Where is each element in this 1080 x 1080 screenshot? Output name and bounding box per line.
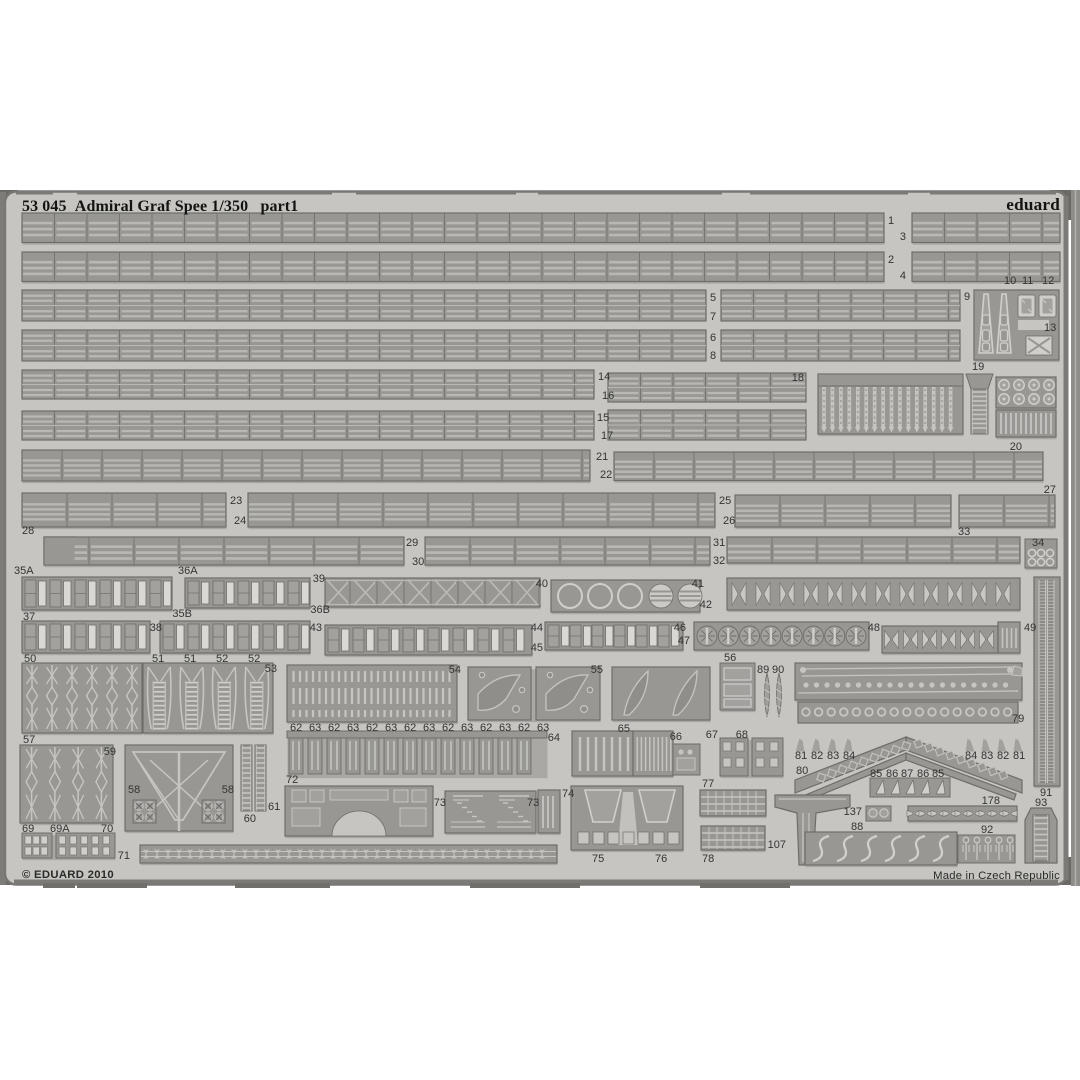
svg-text:83: 83 <box>827 750 839 762</box>
svg-text:92: 92 <box>981 824 993 836</box>
svg-text:59: 59 <box>104 746 116 758</box>
svg-text:79: 79 <box>1012 713 1024 725</box>
svg-text:54: 54 <box>449 664 461 676</box>
svg-text:63: 63 <box>385 722 397 734</box>
svg-text:75: 75 <box>592 853 604 865</box>
svg-text:76: 76 <box>655 853 667 865</box>
svg-text:29: 29 <box>406 537 418 549</box>
svg-text:50: 50 <box>24 653 36 665</box>
svg-text:84: 84 <box>843 750 855 762</box>
svg-text:56: 56 <box>724 652 736 664</box>
svg-text:26: 26 <box>723 515 735 527</box>
svg-text:41: 41 <box>692 578 704 590</box>
svg-text:82: 82 <box>997 750 1009 762</box>
svg-text:33: 33 <box>958 526 970 538</box>
svg-text:88: 88 <box>851 821 863 833</box>
svg-text:30: 30 <box>412 556 424 568</box>
svg-text:63: 63 <box>309 722 321 734</box>
svg-text:3: 3 <box>900 231 906 243</box>
svg-text:27: 27 <box>1044 484 1056 496</box>
svg-text:61: 61 <box>268 801 280 813</box>
svg-text:14: 14 <box>598 371 610 383</box>
svg-text:83: 83 <box>981 750 993 762</box>
svg-text:87: 87 <box>901 768 913 780</box>
svg-text:62: 62 <box>290 722 302 734</box>
svg-text:63: 63 <box>423 722 435 734</box>
svg-text:40: 40 <box>536 578 548 590</box>
svg-text:10: 10 <box>1004 275 1016 287</box>
svg-text:57: 57 <box>23 734 35 746</box>
svg-text:71: 71 <box>118 850 130 862</box>
svg-text:91: 91 <box>1040 787 1052 799</box>
svg-text:36B: 36B <box>310 604 330 616</box>
svg-text:47: 47 <box>678 635 690 647</box>
svg-text:72: 72 <box>286 774 298 786</box>
svg-text:63: 63 <box>461 722 473 734</box>
svg-text:© EDUARD 2010: © EDUARD 2010 <box>22 869 114 881</box>
svg-text:52: 52 <box>248 653 260 665</box>
svg-text:44: 44 <box>531 622 543 634</box>
svg-text:86: 86 <box>886 768 898 780</box>
svg-text:36A: 36A <box>178 565 198 577</box>
svg-text:eduard: eduard <box>1006 195 1060 214</box>
svg-text:24: 24 <box>234 515 246 527</box>
svg-text:89: 89 <box>757 664 769 676</box>
svg-text:62: 62 <box>404 722 416 734</box>
svg-text:48: 48 <box>868 622 880 634</box>
svg-text:85: 85 <box>932 768 944 780</box>
svg-text:32: 32 <box>713 555 725 567</box>
svg-text:69: 69 <box>22 823 34 835</box>
svg-text:86: 86 <box>917 768 929 780</box>
svg-text:22: 22 <box>600 469 612 481</box>
svg-text:42: 42 <box>700 599 712 611</box>
svg-text:49: 49 <box>1024 622 1036 634</box>
svg-text:62: 62 <box>480 722 492 734</box>
svg-text:39: 39 <box>313 573 325 585</box>
svg-text:4: 4 <box>900 270 906 282</box>
svg-text:28: 28 <box>22 525 34 537</box>
svg-text:68: 68 <box>736 729 748 741</box>
svg-text:62: 62 <box>518 722 530 734</box>
svg-text:37: 37 <box>23 611 35 623</box>
svg-text:Made in Czech Republic: Made in Czech Republic <box>933 870 1060 882</box>
svg-text:51: 51 <box>184 653 196 665</box>
svg-text:63: 63 <box>537 722 549 734</box>
svg-text:74: 74 <box>562 788 574 800</box>
svg-text:78: 78 <box>702 853 714 865</box>
svg-text:23: 23 <box>230 495 242 507</box>
svg-text:62: 62 <box>442 722 454 734</box>
svg-text:84: 84 <box>965 750 977 762</box>
svg-text:178: 178 <box>982 795 1000 807</box>
svg-text:63: 63 <box>499 722 511 734</box>
svg-text:31: 31 <box>713 537 725 549</box>
svg-text:43: 43 <box>310 622 322 634</box>
svg-text:11: 11 <box>1022 275 1033 287</box>
svg-text:63: 63 <box>347 722 359 734</box>
svg-text:82: 82 <box>811 750 823 762</box>
svg-text:70: 70 <box>101 823 113 835</box>
svg-text:77: 77 <box>702 778 714 790</box>
svg-text:58: 58 <box>128 784 140 796</box>
svg-text:8: 8 <box>710 350 716 362</box>
svg-text:62: 62 <box>366 722 378 734</box>
svg-text:45: 45 <box>531 642 543 654</box>
svg-text:62: 62 <box>328 722 340 734</box>
svg-text:25: 25 <box>719 495 731 507</box>
svg-text:67: 67 <box>706 729 718 741</box>
svg-text:9: 9 <box>964 291 970 303</box>
svg-text:15: 15 <box>597 412 609 424</box>
svg-text:81: 81 <box>795 750 807 762</box>
svg-text:85: 85 <box>870 768 882 780</box>
svg-text:17: 17 <box>601 430 613 442</box>
svg-text:53 045 Admiral Graf Spee 1/35: 53 045 Admiral Graf Spee 1/350 part1 <box>22 198 298 215</box>
svg-text:81: 81 <box>1013 750 1025 762</box>
svg-text:38: 38 <box>150 622 162 634</box>
svg-text:73: 73 <box>527 797 539 809</box>
svg-text:12: 12 <box>1042 275 1054 287</box>
svg-text:20: 20 <box>1010 441 1022 453</box>
svg-text:21: 21 <box>596 451 608 463</box>
svg-text:52: 52 <box>216 653 228 665</box>
svg-text:107: 107 <box>768 839 786 851</box>
svg-text:66: 66 <box>670 731 682 743</box>
svg-text:2: 2 <box>888 254 894 266</box>
svg-text:34: 34 <box>1032 537 1044 549</box>
svg-text:35B: 35B <box>172 608 192 620</box>
svg-text:90: 90 <box>772 664 784 676</box>
svg-text:35A: 35A <box>14 565 34 577</box>
svg-text:6: 6 <box>710 332 716 344</box>
svg-text:18: 18 <box>792 372 804 384</box>
svg-text:137: 137 <box>844 806 862 818</box>
svg-text:73: 73 <box>434 797 446 809</box>
svg-text:51: 51 <box>152 653 164 665</box>
svg-text:46: 46 <box>674 622 686 634</box>
svg-text:65: 65 <box>618 723 630 735</box>
svg-text:13: 13 <box>1044 322 1056 334</box>
svg-text:7: 7 <box>710 311 716 323</box>
svg-text:1: 1 <box>888 215 894 227</box>
svg-text:60: 60 <box>244 813 256 825</box>
svg-text:69A: 69A <box>50 823 70 835</box>
svg-text:19: 19 <box>972 361 984 373</box>
svg-text:53: 53 <box>265 663 277 675</box>
svg-text:55: 55 <box>591 664 603 676</box>
svg-text:64: 64 <box>548 732 560 744</box>
svg-text:58: 58 <box>222 784 234 796</box>
svg-text:80: 80 <box>796 765 808 777</box>
svg-text:5: 5 <box>710 292 716 304</box>
svg-text:16: 16 <box>602 390 614 402</box>
